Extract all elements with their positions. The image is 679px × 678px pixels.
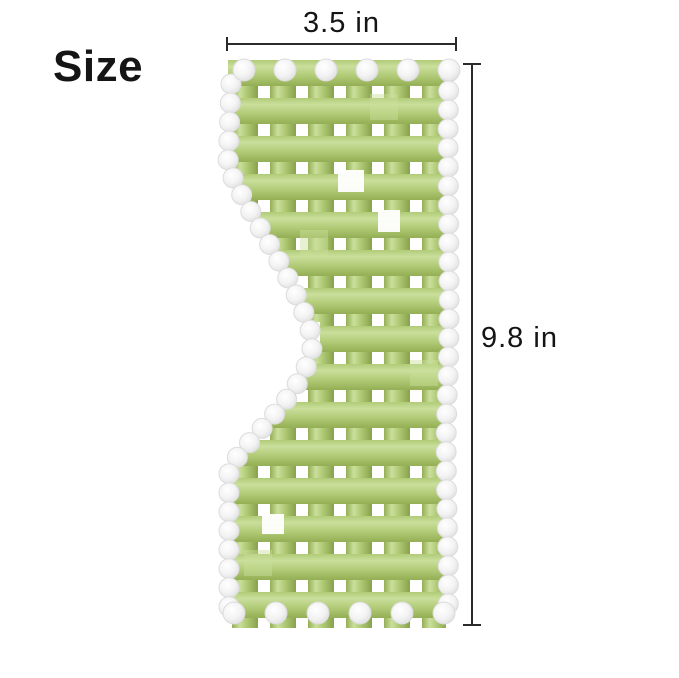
crystal-bead [438,119,458,139]
crystal-bead [439,271,459,291]
crystal-bead [439,81,459,101]
crystal-bead [439,233,459,253]
weave-tint [410,360,438,386]
weave-gap [262,514,284,534]
crystal-bead [438,537,458,557]
crystal-bead [439,347,459,367]
crystal-bead [439,309,459,329]
weave-tint [300,230,328,256]
crystal-bead [302,339,322,359]
crystal-bead [439,252,459,272]
crystal-bead [219,131,239,151]
crystal-bead [218,150,238,170]
crystal-bead [219,540,239,560]
weave-tint [244,550,272,576]
crystal-bead [294,302,314,322]
crystal-bead [307,602,329,624]
crystal-bead [438,366,458,386]
crystal-bead [436,442,456,462]
crystal-bead [436,423,456,443]
crystal-bead [315,59,337,81]
crystal-bead [433,602,455,624]
crystal-bead [438,100,458,120]
crystal-bead [437,385,457,405]
crystal-bead [265,602,287,624]
crystal-bead [436,461,456,481]
crystal-bead [219,502,239,522]
weave-tint [370,94,398,120]
crystal-bead [438,59,460,81]
crystal-bead [219,464,239,484]
crystal-bead [397,59,419,81]
bead-chain-right-beads [436,62,459,614]
woven-jade-panel [210,52,460,642]
crystal-bead [438,157,458,177]
crystal-bead [219,578,239,598]
crystal-bead [356,59,378,81]
crystal-bead [219,483,239,503]
crystal-bead [438,575,458,595]
product-illustration [0,0,679,678]
crystal-bead [274,59,296,81]
weave-gap [338,170,364,192]
crystal-bead [439,214,459,234]
crystal-bead [219,521,239,541]
height-dimension-line [463,64,481,625]
crystal-bead [437,480,457,500]
crystal-bead [233,59,255,81]
width-dimension-line [227,37,456,51]
crystal-bead [437,404,457,424]
crystal-bead [349,602,371,624]
crystal-bead [220,112,240,132]
product-size-diagram: Size 3.5 in 9.8 in [0,0,679,678]
crystal-bead [438,138,458,158]
crystal-bead [391,602,413,624]
crystal-bead [437,499,457,519]
crystal-bead [439,328,459,348]
crystal-bead [219,559,239,579]
crystal-bead [438,176,458,196]
weave-gap [378,210,400,232]
crystal-bead [220,93,240,113]
crystal-bead [223,602,245,624]
crystal-bead [437,518,457,538]
crystal-bead [438,195,458,215]
crystal-bead [438,556,458,576]
crystal-bead [300,320,320,340]
crystal-bead [439,290,459,310]
